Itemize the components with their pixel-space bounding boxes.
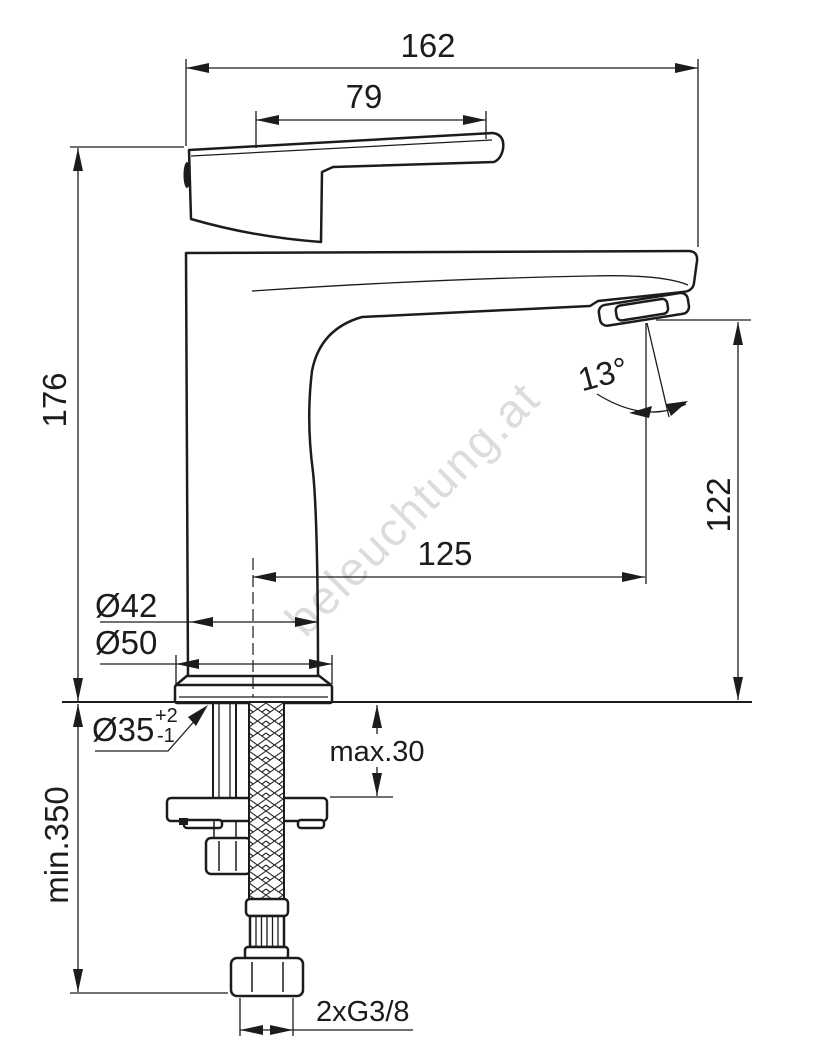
handle-indicator-dot bbox=[184, 162, 191, 188]
flange-foot-left bbox=[184, 820, 222, 828]
label-handle-length: 79 bbox=[346, 78, 383, 115]
threaded-shank-inner bbox=[219, 703, 230, 797]
label-hose-length: min.350 bbox=[38, 786, 75, 903]
label-deck-thickness: max.30 bbox=[329, 736, 424, 768]
underdeck-assembly bbox=[167, 703, 327, 996]
label-spout-reach: 125 bbox=[417, 535, 472, 572]
mounting-nut bbox=[206, 838, 251, 874]
label-overall-height: 176 bbox=[36, 372, 73, 427]
label-spout-angle: 13° bbox=[574, 350, 632, 399]
label-base-diameter: Ø50 bbox=[95, 624, 157, 661]
label-hole-tol-upper: +2 bbox=[155, 705, 178, 727]
faucet-technical-drawing: 162 79 176 13° 122 125 Ø42 Ø50 Ø35 +2 -1… bbox=[0, 0, 832, 1058]
connection-nut bbox=[231, 958, 303, 996]
flange-clip bbox=[179, 818, 188, 825]
handle-lever bbox=[189, 133, 503, 242]
flange-foot-right bbox=[298, 820, 324, 828]
label-body-diameter: Ø42 bbox=[95, 587, 157, 624]
threaded-shank bbox=[213, 703, 236, 797]
label-outlet-height: 122 bbox=[700, 477, 737, 532]
hose-ferrule bbox=[246, 899, 288, 916]
label-overall-width: 162 bbox=[400, 27, 455, 64]
label-connection: 2xG3/8 bbox=[316, 996, 410, 1028]
label-hole-diameter: Ø35 bbox=[92, 711, 154, 748]
label-hole-tol-lower: -1 bbox=[157, 725, 175, 747]
braided-hose bbox=[249, 703, 284, 899]
mounting-flange bbox=[167, 798, 327, 821]
